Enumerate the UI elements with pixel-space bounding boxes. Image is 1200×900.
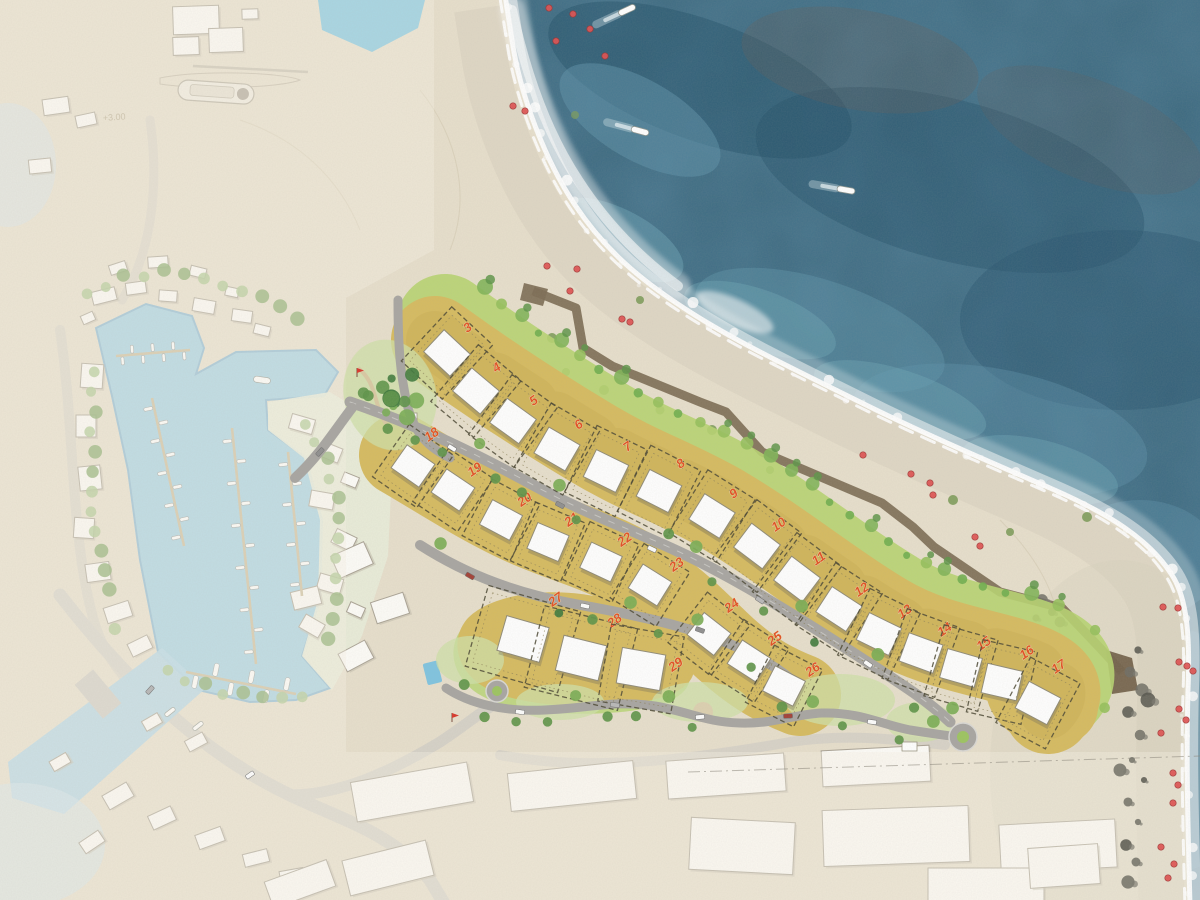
beach-umbrella xyxy=(627,319,633,325)
roundabout-west xyxy=(486,680,508,702)
beach-umbrella xyxy=(567,288,573,294)
beach-umbrella xyxy=(574,266,580,272)
beach-umbrella xyxy=(1184,663,1190,669)
beach-umbrella xyxy=(570,11,576,17)
beach-umbrella xyxy=(977,543,983,549)
masterplan-canvas: +3.00 xyxy=(0,0,1200,900)
beach-umbrella xyxy=(510,103,516,109)
beach-umbrella xyxy=(1190,668,1196,674)
beach-umbrella xyxy=(927,480,933,486)
beach-umbrella xyxy=(1160,604,1166,610)
car xyxy=(783,714,792,719)
beach-umbrella xyxy=(1175,605,1181,611)
car xyxy=(610,702,620,708)
beach-umbrella xyxy=(1158,844,1164,850)
beach-umbrella xyxy=(1175,782,1181,788)
roundabout-east xyxy=(949,723,977,751)
car xyxy=(867,719,877,725)
beach-umbrella xyxy=(930,492,936,498)
beach-umbrella xyxy=(1170,770,1176,776)
car xyxy=(695,714,704,719)
beach-umbrella xyxy=(972,534,978,540)
beach-umbrella xyxy=(1176,706,1182,712)
beach-umbrella xyxy=(544,263,550,269)
beach-umbrella xyxy=(553,38,559,44)
beach-umbrella xyxy=(619,316,625,322)
beach-umbrella xyxy=(1170,800,1176,806)
beach-umbrella xyxy=(522,108,528,114)
villa-pad xyxy=(616,647,666,690)
beach-umbrella xyxy=(1158,730,1164,736)
beach-umbrella xyxy=(1176,659,1182,665)
site-plan-map: +3.00 xyxy=(0,0,1200,900)
gatehouse xyxy=(902,742,917,751)
beach-umbrella xyxy=(860,452,866,458)
beach-umbrella xyxy=(587,26,593,32)
beach-umbrella xyxy=(546,5,552,11)
beach-umbrella xyxy=(1165,875,1171,881)
beach-umbrella xyxy=(908,471,914,477)
beach-umbrella xyxy=(1171,861,1177,867)
beach-umbrella xyxy=(602,53,608,59)
beach-umbrella xyxy=(1183,717,1189,723)
